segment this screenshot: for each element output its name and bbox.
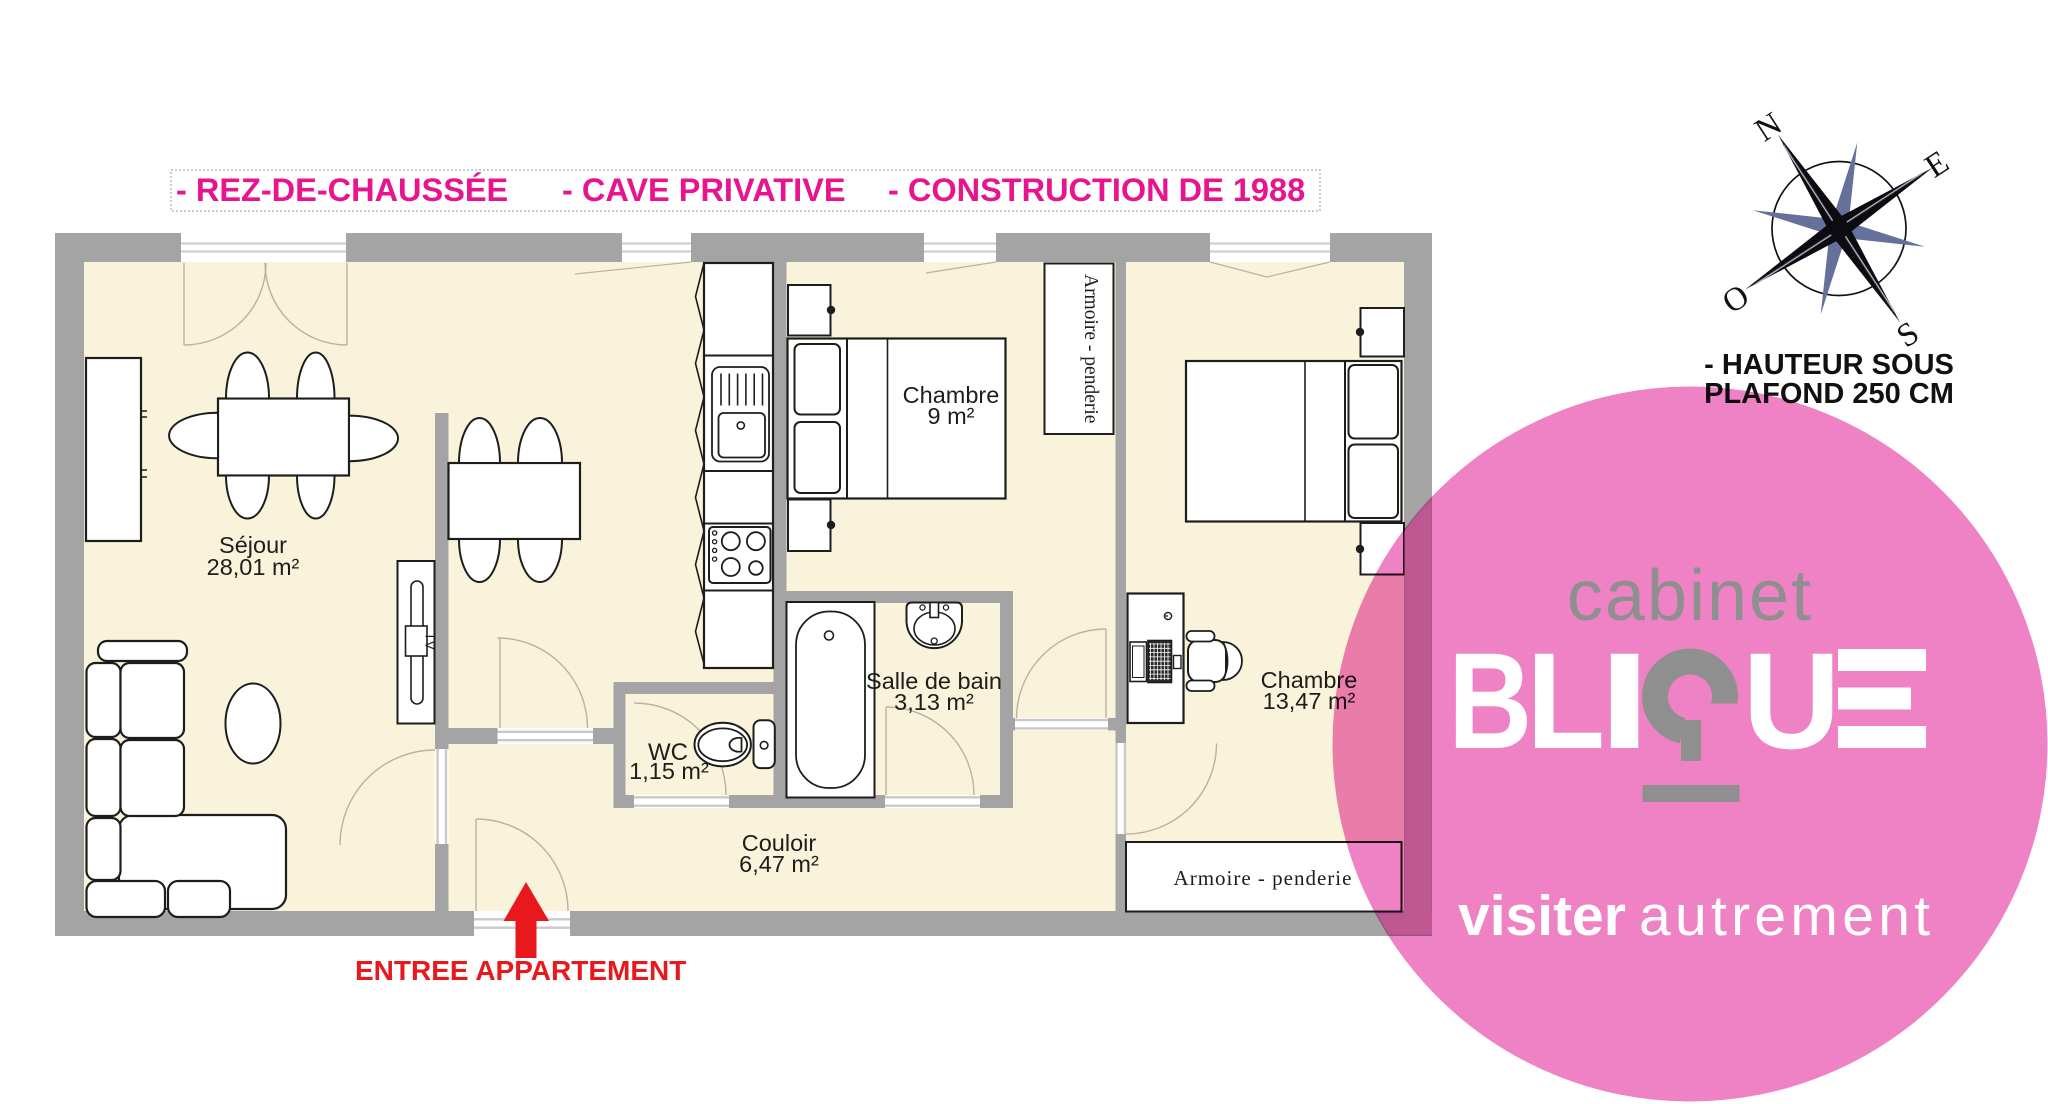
svg-text:E: E bbox=[1919, 144, 1956, 185]
svg-text:L: L bbox=[1526, 625, 1605, 778]
svg-text:1,15 m²: 1,15 m² bbox=[629, 758, 709, 784]
svg-text:TV: TV bbox=[423, 632, 439, 651]
svg-text:6,47 m²: 6,47 m² bbox=[739, 851, 819, 877]
svg-text:9 m²: 9 m² bbox=[928, 403, 975, 429]
svg-text:autrement: autrement bbox=[1639, 884, 1934, 948]
svg-text:visiter: visiter bbox=[1458, 884, 1626, 948]
svg-text:Armoire - penderie: Armoire - penderie bbox=[1080, 274, 1101, 423]
svg-text:- HAUTEUR SOUS: - HAUTEUR SOUS bbox=[1704, 349, 1954, 381]
svg-text:B: B bbox=[1448, 624, 1532, 777]
svg-text:- CONSTRUCTION DE 1988: - CONSTRUCTION DE 1988 bbox=[888, 172, 1305, 208]
svg-text:O: O bbox=[1716, 278, 1756, 321]
svg-text:ENTREE APPARTEMENT: ENTREE APPARTEMENT bbox=[355, 955, 686, 986]
svg-text:- CAVE PRIVATIVE: - CAVE PRIVATIVE bbox=[562, 172, 846, 208]
svg-text:U: U bbox=[1743, 624, 1841, 777]
svg-text:28,01 m²: 28,01 m² bbox=[207, 554, 300, 580]
svg-text:Armoire - penderie: Armoire - penderie bbox=[1174, 866, 1353, 890]
svg-text:- REZ-DE-CHAUSSÉE: - REZ-DE-CHAUSSÉE bbox=[176, 171, 508, 208]
svg-text:3,13 m²: 3,13 m² bbox=[894, 689, 974, 715]
